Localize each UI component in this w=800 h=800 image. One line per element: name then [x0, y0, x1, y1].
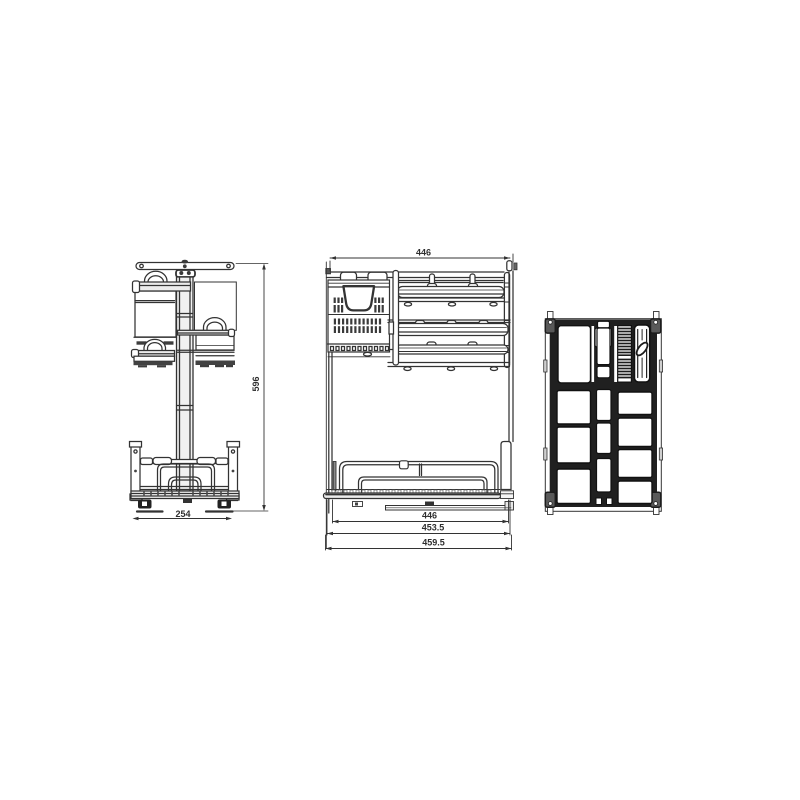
svg-text:453.5: 453.5	[422, 523, 445, 533]
svg-text:446: 446	[416, 248, 431, 258]
svg-text:254: 254	[175, 509, 190, 519]
svg-text:596: 596	[251, 376, 261, 391]
svg-text:459.5: 459.5	[422, 538, 445, 548]
svg-text:446: 446	[422, 511, 437, 521]
